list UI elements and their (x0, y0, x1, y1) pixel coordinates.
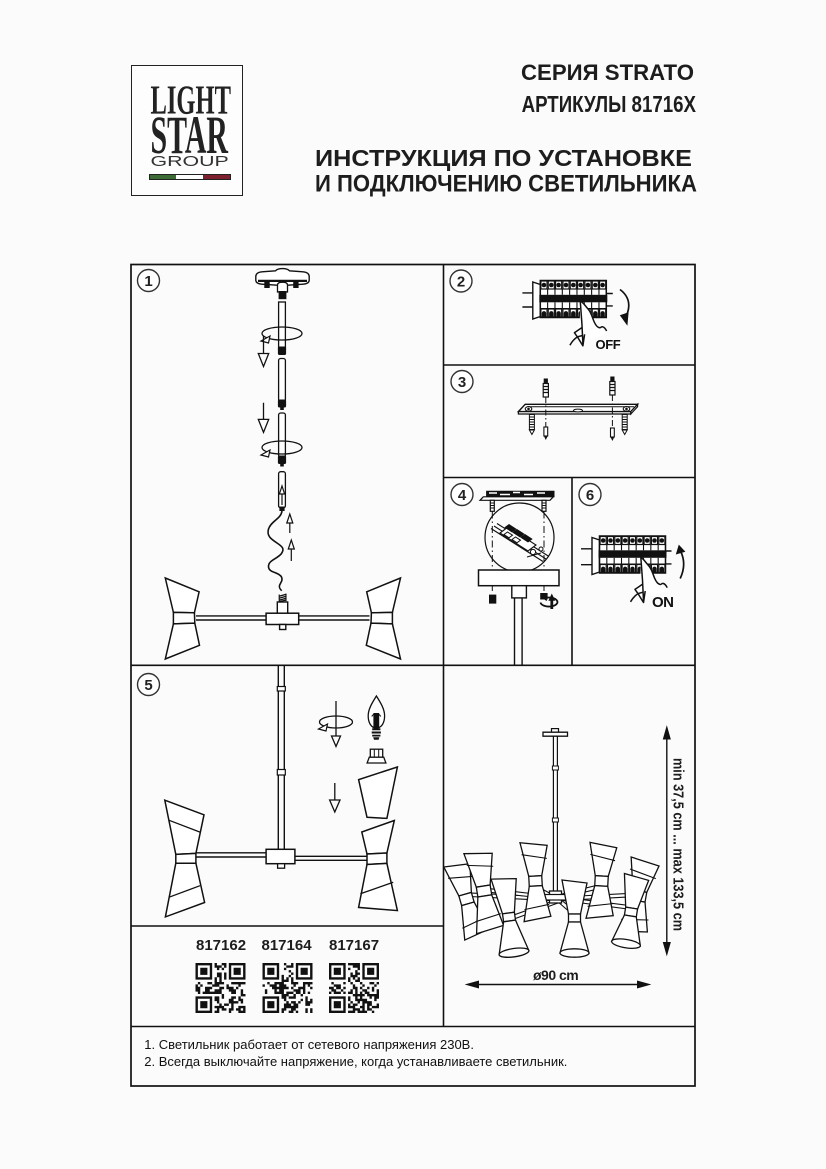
svg-text:1: 1 (144, 273, 152, 290)
svg-text:5: 5 (144, 677, 152, 694)
svg-text:4: 4 (458, 487, 467, 504)
svg-text:min 37,5 cm ... max 133,5 cm: min 37,5 cm ... max 133,5 cm (670, 758, 686, 931)
svg-text:6: 6 (586, 487, 594, 504)
svg-text:2: 2 (457, 273, 465, 290)
svg-text:3: 3 (458, 374, 466, 391)
